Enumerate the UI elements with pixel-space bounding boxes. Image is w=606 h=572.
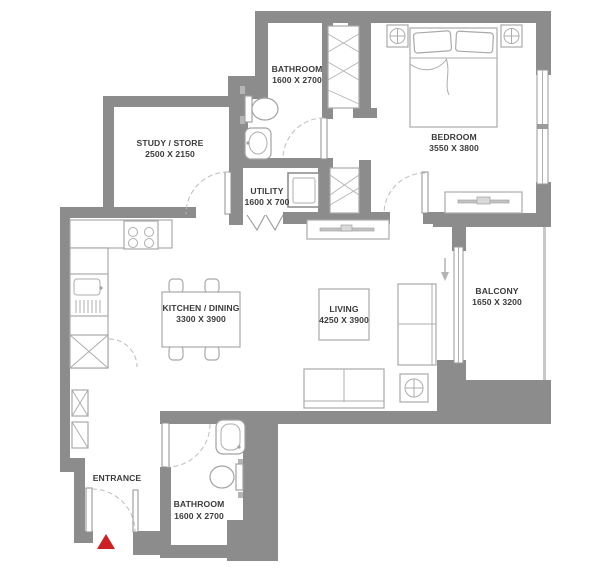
living-dims: 4250 X 3900 (319, 315, 369, 325)
basin-tap (246, 141, 249, 144)
entrance-door-arc (92, 489, 135, 532)
appliance-swing-arc (109, 339, 137, 367)
toilet-bowl (252, 98, 278, 120)
wall-segment (103, 96, 233, 107)
wall-segment (160, 467, 171, 557)
bathroom-bottom-dims: 1600 X 2700 (174, 511, 224, 521)
kitchen-furniture (70, 220, 172, 368)
bathroom-top-label: BATHROOM (272, 64, 323, 74)
dining-chair (205, 279, 219, 293)
entrance-door-leaf (86, 488, 92, 532)
pillow (456, 31, 494, 53)
living-furniture (304, 220, 436, 408)
wall-segment (353, 108, 377, 118)
wall-segment (227, 520, 278, 561)
entrance-marker-icon (97, 534, 115, 549)
wall-segment (60, 207, 70, 470)
balcony-railing (543, 227, 546, 380)
balcony-dims: 1650 X 3200 (472, 297, 522, 307)
tap-mark (238, 492, 243, 498)
basin-drain (237, 445, 240, 448)
kitchen-dining-dims: 3300 X 3900 (176, 314, 226, 324)
bedroom-dims: 3550 X 3800 (429, 143, 479, 153)
wall-segment (423, 212, 466, 224)
wall-segment (536, 11, 551, 75)
entrance-door-jamb (133, 490, 138, 532)
wall-segment (74, 531, 93, 543)
tap-mark (240, 116, 245, 124)
utility-dims: 1600 X 700 (245, 197, 290, 207)
wall-segment (255, 11, 551, 23)
wall-segment (359, 23, 371, 118)
wardrobe-upper (328, 26, 359, 108)
study-dims: 2500 X 2150 (145, 149, 195, 159)
wall-segment (133, 531, 163, 555)
toilet-bowl (210, 466, 234, 488)
bathroom-bottom-fixtures (210, 420, 245, 498)
wall-segment (160, 411, 466, 424)
toilet-tank (245, 96, 252, 122)
dining-chair (169, 279, 183, 293)
bedroom-window-frame (537, 124, 548, 129)
wall-segment (160, 545, 235, 558)
kitchen-drainer-lines (76, 300, 100, 313)
floor-plan: STUDY / STORE 2500 X 2150 BATHROOM 1600 … (0, 0, 606, 572)
bathroom-top-door-leaf (321, 118, 327, 159)
living-label: LIVING (329, 304, 358, 314)
bathroom-bottom-door-leaf (162, 423, 169, 467)
size-tag (341, 225, 352, 231)
study-door-leaf (225, 172, 231, 214)
wall-segment (103, 96, 114, 218)
bedroom-door-arc (384, 173, 425, 214)
toilet-tank (236, 464, 243, 490)
kitchen-dining-label: KITCHEN / DINING (162, 303, 239, 313)
bedroom-door-leaf (422, 172, 428, 213)
size-tag (477, 197, 490, 204)
bedroom-label: BEDROOM (431, 132, 477, 142)
utility-furniture (288, 173, 319, 207)
utility-bifold-doors (247, 215, 283, 230)
bathroom-bottom-door-arc (167, 424, 210, 467)
tap-mark (240, 86, 245, 94)
dining-chair (169, 346, 183, 360)
dining-chair (205, 346, 219, 360)
kitchen-tap (99, 286, 102, 289)
study-label: STUDY / STORE (137, 138, 204, 148)
bathroom-top-door-arc (283, 118, 324, 159)
bathroom-top-dims: 1600 X 2700 (272, 75, 322, 85)
wall-segment (60, 207, 196, 218)
pillow (413, 31, 451, 54)
washbasin (216, 420, 245, 454)
entrance-label: ENTRANCE (93, 473, 142, 483)
floor-plan-page: STUDY / STORE 2500 X 2150 BATHROOM 1600 … (0, 0, 606, 572)
balcony-access-arrow-head (441, 272, 449, 281)
utility-label: UTILITY (250, 186, 283, 196)
balcony-label: BALCONY (475, 286, 518, 296)
bathroom-bottom-label: BATHROOM (174, 499, 225, 509)
